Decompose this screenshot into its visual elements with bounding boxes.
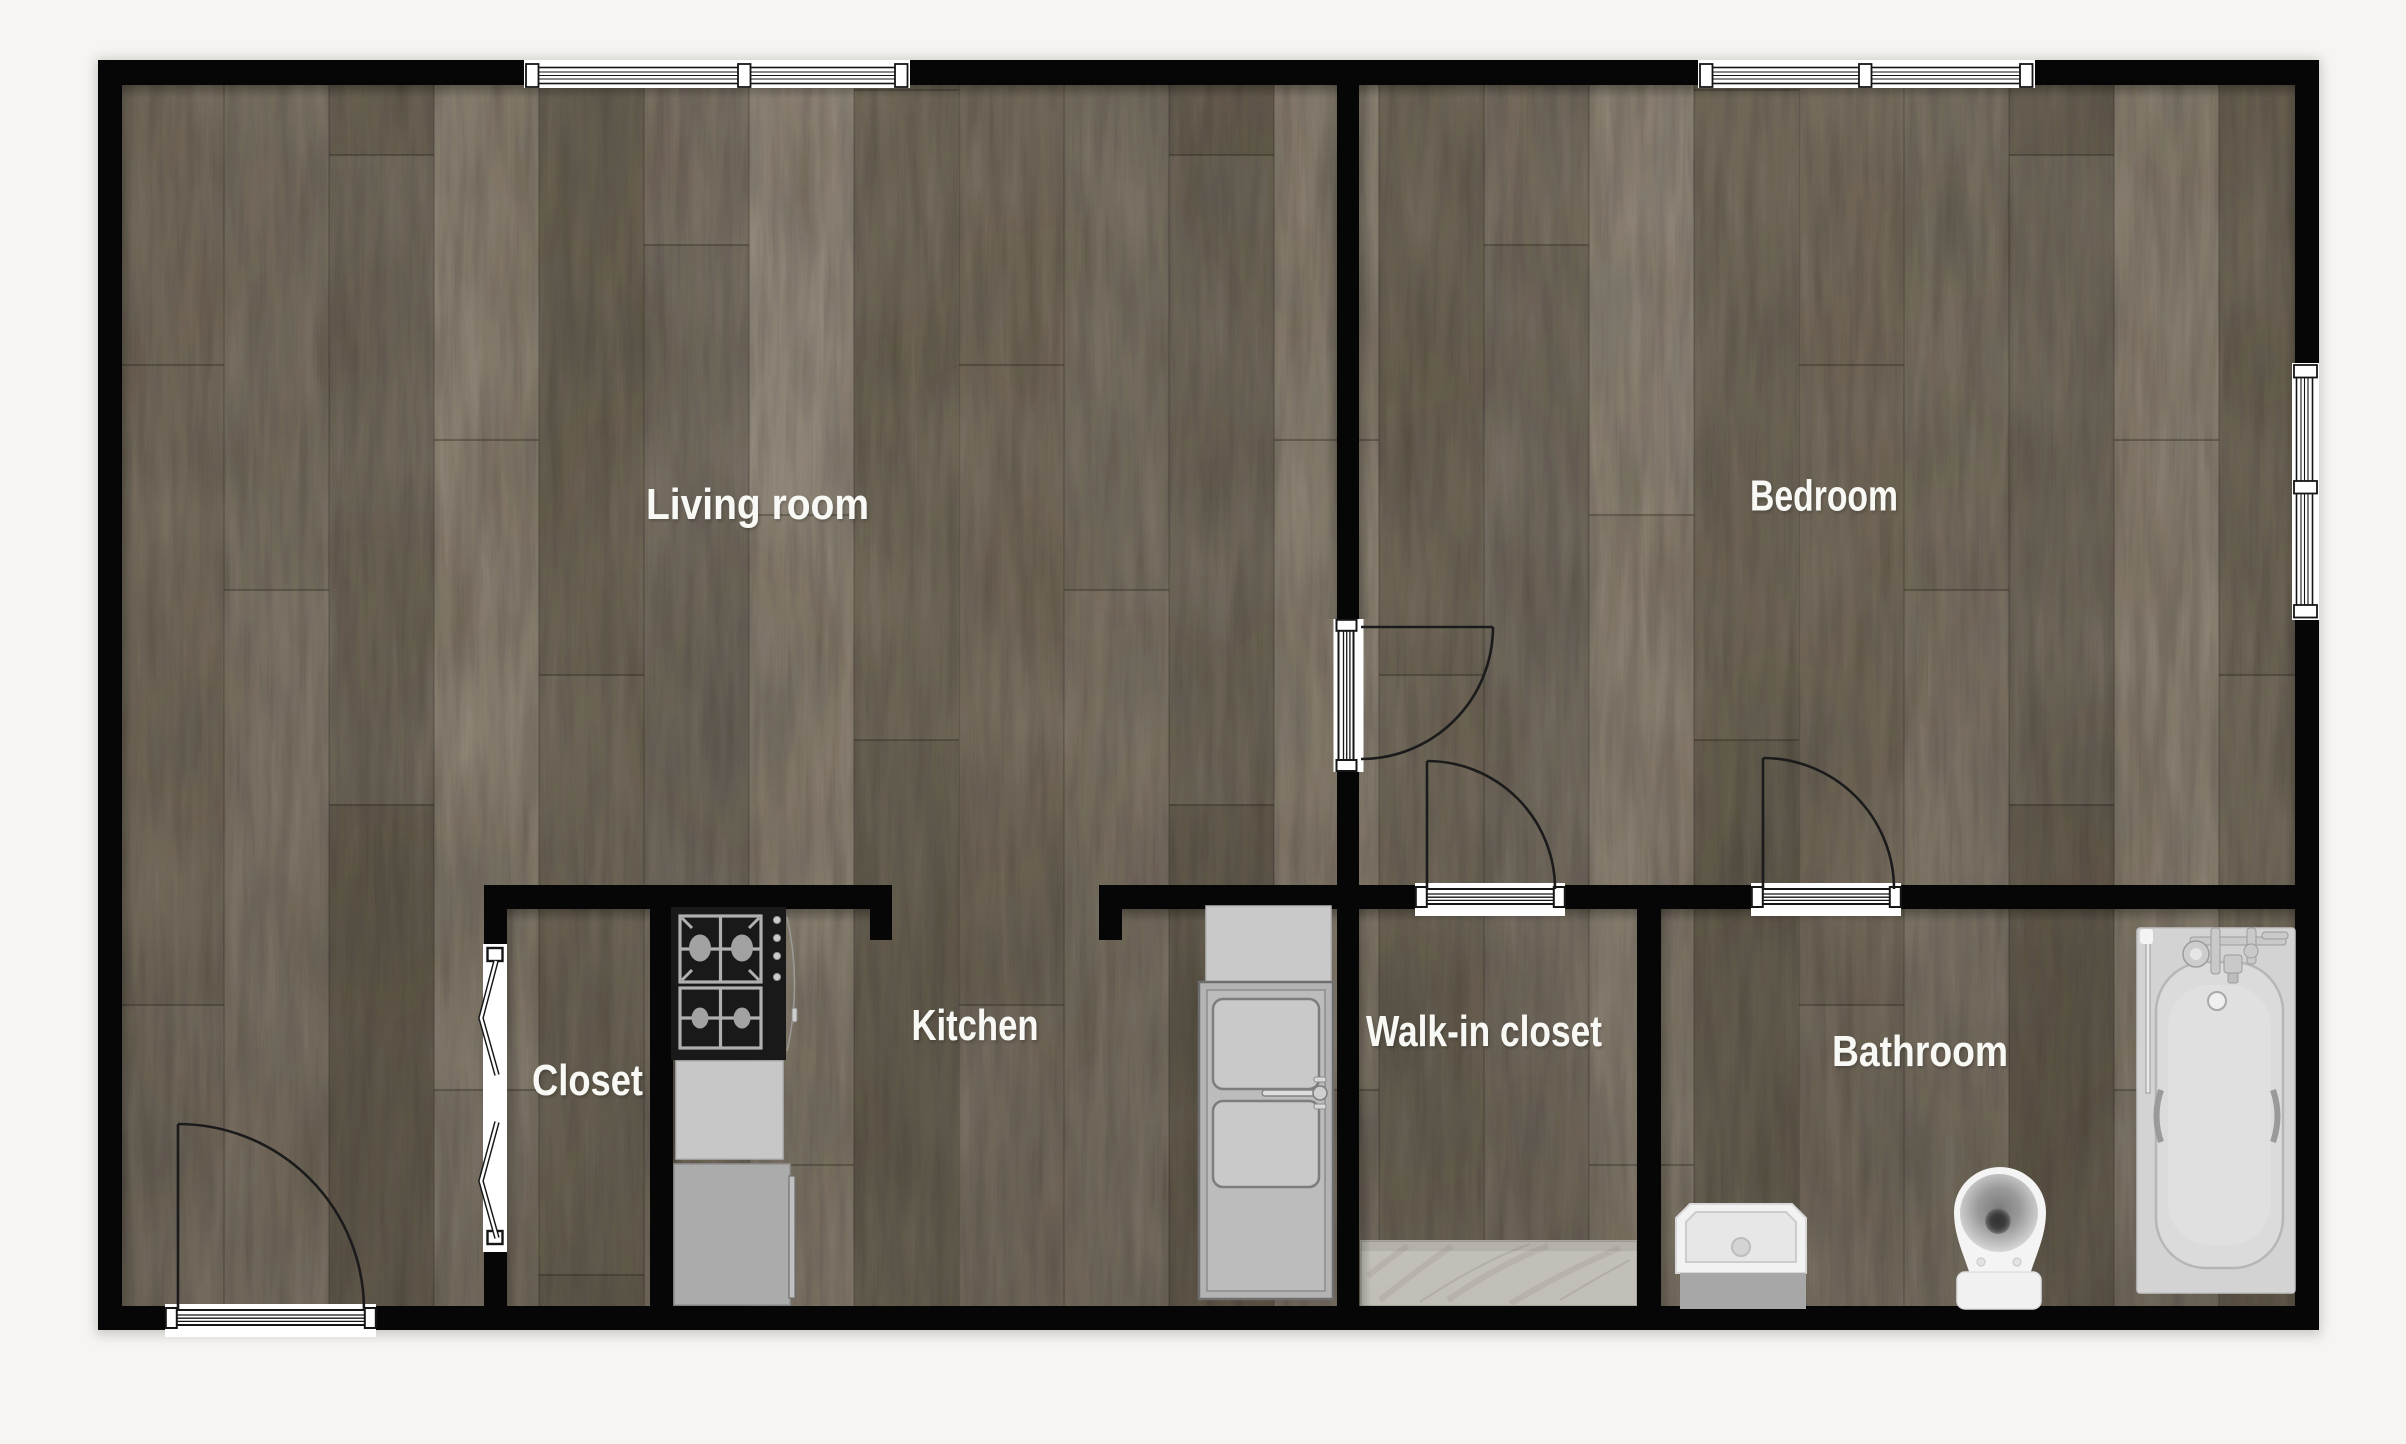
- svg-text:Walk-in closet: Walk-in closet: [1366, 1008, 1602, 1056]
- svg-text:Bathroom: Bathroom: [1832, 1028, 2008, 1076]
- svg-text:Bedroom: Bedroom: [1750, 473, 1898, 521]
- svg-text:Living room: Living room: [646, 481, 869, 529]
- svg-text:Kitchen: Kitchen: [912, 1002, 1039, 1050]
- svg-text:Closet: Closet: [532, 1057, 643, 1105]
